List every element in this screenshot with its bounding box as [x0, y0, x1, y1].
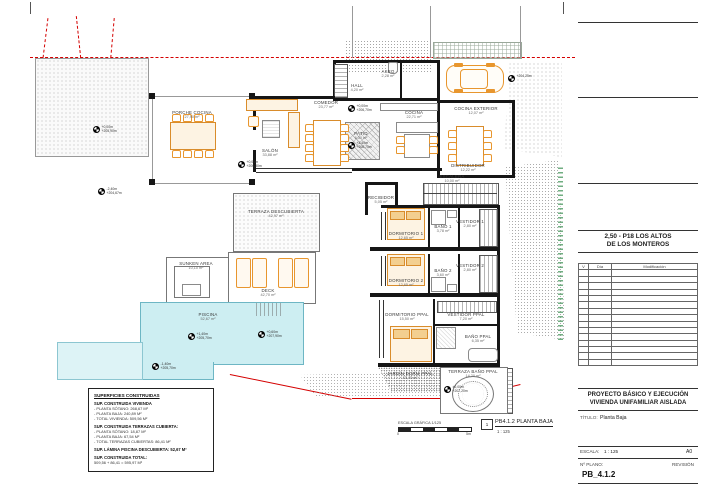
wall — [428, 208, 430, 247]
pool-steps — [256, 303, 282, 316]
dining-table — [313, 120, 341, 166]
wall — [333, 60, 437, 63]
room-label-deck: DECK42,70 m² — [261, 288, 276, 298]
wall — [435, 324, 497, 326]
level-icon — [258, 331, 265, 338]
room-label-jardin-ppal: JARDÍN DORM PPAL13,40 m² — [387, 371, 433, 381]
room-label-vestidor-1: VESTIDOR 12,80 m² — [456, 219, 484, 229]
callout-number: 1 — [481, 419, 493, 430]
titulo-label: TÍTULO: — [580, 415, 598, 420]
escala-value: 1 : 125 — [604, 449, 618, 454]
kitchen-table — [404, 134, 430, 158]
project-code-line1: 2,50 - P18 LOS ALTOS — [578, 233, 698, 240]
level-marker: +1,40m+205,70m — [188, 333, 212, 341]
room-label-recibidor: RECIBIDOR5,05 m² — [368, 195, 394, 205]
title-block-rule — [578, 446, 698, 447]
column — [149, 179, 155, 185]
room-label-dormitorio-1: DORMITORIO 112,65 m² — [389, 231, 424, 241]
wall — [458, 254, 460, 293]
wall — [433, 299, 435, 363]
bathtub — [468, 348, 498, 362]
car-icon — [446, 64, 504, 94]
title-block-rule — [578, 22, 698, 23]
level-marker: +204,25m — [508, 75, 532, 82]
wall — [437, 60, 440, 178]
coffee-table — [262, 120, 280, 138]
level-icon — [508, 75, 515, 82]
room-label-comedor: COMEDOR23,77 m² — [314, 100, 338, 110]
project-title-line1: PROYECTO BÁSICO Y EJECUCIÓN — [578, 392, 698, 398]
wall — [352, 168, 442, 171]
window — [256, 168, 352, 173]
level-icon — [188, 333, 195, 340]
level-icon — [238, 161, 245, 168]
porch-edge — [152, 183, 255, 184]
level-marker: +1,40m+206,70m — [348, 142, 372, 150]
jacuzzi-icon — [452, 376, 494, 412]
plot-boundary-line — [43, 18, 49, 58]
room-label-cocina-exterior: COCINA EXTERIOR12,07 m² — [454, 106, 498, 116]
scale-bar — [398, 427, 472, 432]
room-label-terraza-descubierta: TERRAZA DESCUBIERTA42,97 m² — [248, 209, 304, 219]
wall — [370, 293, 500, 297]
level-marker: +0,00m+206,70m — [348, 105, 372, 113]
title-block-rule — [578, 252, 698, 253]
num-plano-label: Nº PLANO: — [580, 462, 603, 467]
level-marker: +0,00m+206,30m — [238, 161, 262, 169]
areas-title: SUPERFICIES CONSTRUIDAS — [94, 393, 209, 398]
outdoor-table — [456, 126, 484, 166]
title-block-rule — [578, 410, 698, 411]
drawing-sheet: PORCHE COCINA27,90 m² SALÓN33,88 m² COME… — [0, 0, 705, 498]
sink — [447, 210, 457, 218]
paver-texture — [433, 42, 522, 59]
level-icon — [348, 142, 355, 149]
room-label-terraza-bano-ppal: TERRAZA BAÑO PPAL14,20 m² — [448, 369, 497, 379]
title-block-rule — [578, 388, 698, 389]
sun-lounger — [236, 258, 251, 288]
stair-center-line — [423, 193, 497, 194]
level-icon — [93, 126, 100, 133]
wall — [428, 254, 430, 293]
window — [381, 212, 386, 240]
title-block-rule — [578, 183, 698, 184]
room-label-vestidor-ppal: VESTIDOR PPAL7,20 m² — [447, 312, 484, 322]
project-title-line2: VIVIENDA UNIFAMILIAR AISLADA — [578, 400, 698, 406]
crop-mark — [30, 2, 31, 14]
level-icon — [348, 105, 355, 112]
shower — [431, 277, 446, 292]
title-block-rule — [578, 458, 698, 459]
scale-bar-end: 5m — [466, 432, 471, 436]
callout-scale: 1 : 125 — [497, 429, 510, 434]
room-label-patio: PATIO6,30 m² — [354, 131, 368, 141]
room-label-distribuidor: DISTRIBUIDOR12,22 m² — [451, 163, 485, 173]
sink — [447, 284, 457, 292]
stair-treads — [423, 183, 499, 205]
window — [381, 256, 386, 286]
title-block-rule — [578, 97, 698, 98]
kitchen-island — [396, 122, 438, 133]
room-label-aseo: ASEO2,28 m² — [381, 69, 394, 79]
wall — [512, 100, 515, 178]
column — [249, 179, 255, 185]
revision-label: REVISIÓN — [672, 462, 694, 467]
wall — [437, 100, 515, 103]
scale-bar-start: 0 — [397, 432, 399, 436]
room-label-escalera: ESCALERA10,00 m² — [439, 174, 464, 184]
terrace-area — [233, 193, 320, 252]
room-label-hall: HALL4,20 m² — [351, 83, 364, 93]
room-label-salon: SALÓN33,88 m² — [262, 148, 278, 158]
areas-summary-box: SUPERFICIES CONSTRUIDAS SUP. CONSTRUIDA … — [88, 388, 214, 472]
driveway-edge-line — [430, 6, 431, 58]
terrace-paving-texture — [35, 58, 149, 157]
plano-number: PB_4.1.2 — [582, 470, 615, 479]
sun-lounger — [278, 258, 293, 288]
shower — [436, 327, 456, 349]
level-marker: +0,00m+205,90m — [93, 126, 117, 134]
fire-pit — [182, 284, 201, 296]
wall — [365, 182, 398, 185]
garden-texture — [505, 160, 565, 340]
escala-label: ESCALA: — [580, 449, 599, 454]
paper-size: A0 — [686, 449, 692, 455]
outdoor-dining-table — [170, 122, 216, 150]
room-label-dormitorio-ppal: DORMITORIO PPAL15,50 m² — [385, 312, 429, 322]
level-icon — [152, 363, 159, 370]
sun-lounger — [252, 258, 267, 288]
room-label-cocina: COCINA22,71 m² — [405, 110, 423, 120]
level-icon — [444, 386, 451, 393]
level-marker: ±0,00m+207,20m — [444, 386, 468, 394]
sofa — [246, 99, 298, 111]
callout-title: PB4.1.2 PLANTA BAJA — [495, 419, 553, 427]
level-icon — [98, 188, 105, 195]
window — [379, 300, 384, 358]
title-block-rule — [578, 483, 698, 484]
project-code-line2: DE LOS MONTEROS — [578, 241, 698, 248]
revision-table: V Día Modificación — [578, 263, 698, 366]
level-marker: -1,40m+205,70m — [152, 363, 176, 371]
sofa — [288, 112, 300, 148]
room-label-bano-ppal: BAÑO PPAL6,35 m² — [465, 334, 491, 344]
level-marker: +0,60m+207,90m — [258, 331, 282, 339]
driveway-edge-line — [520, 6, 521, 58]
porch-edge — [152, 96, 153, 184]
crop-mark — [563, 2, 564, 14]
entry-steps — [334, 64, 348, 98]
bed-icon — [390, 326, 432, 362]
armchair — [248, 116, 259, 127]
wall — [370, 247, 500, 251]
room-label-bano-2: BAÑO 23,60 m² — [434, 268, 451, 278]
porch-edge — [152, 96, 255, 97]
sun-lounger — [294, 258, 309, 288]
hedge-plants — [558, 165, 563, 340]
scale-bar-label: ESCALA GRÁFICA 1/125 — [398, 421, 441, 425]
titulo-value: Planta Baja — [600, 415, 627, 421]
title-block-rule — [578, 230, 698, 231]
plot-boundary-line — [110, 18, 114, 58]
plot-boundary-line — [76, 16, 81, 58]
pool-shallow — [57, 342, 143, 380]
room-label-bano-1: BAÑO 13,78 m² — [434, 224, 451, 234]
shower — [431, 210, 446, 225]
room-label-dormitorio-2: DORMITORIO 212,65 m² — [389, 278, 424, 288]
room-label-sunken-area: SUNKEN AREA10,10 m² — [179, 261, 212, 271]
room-label-vestidor-2: VESTIDOR 22,80 m² — [456, 263, 484, 273]
level-marker: -2,40m+204,67m — [98, 188, 122, 196]
driveway-edge-line — [352, 6, 353, 58]
wardrobe — [479, 255, 498, 293]
column — [149, 93, 155, 99]
room-label-porche-cocina: PORCHE COCINA27,90 m² — [172, 110, 212, 120]
wall — [333, 98, 440, 101]
wall — [400, 62, 402, 99]
room-label-piscina: PISCINA52,67 m² — [199, 312, 218, 322]
